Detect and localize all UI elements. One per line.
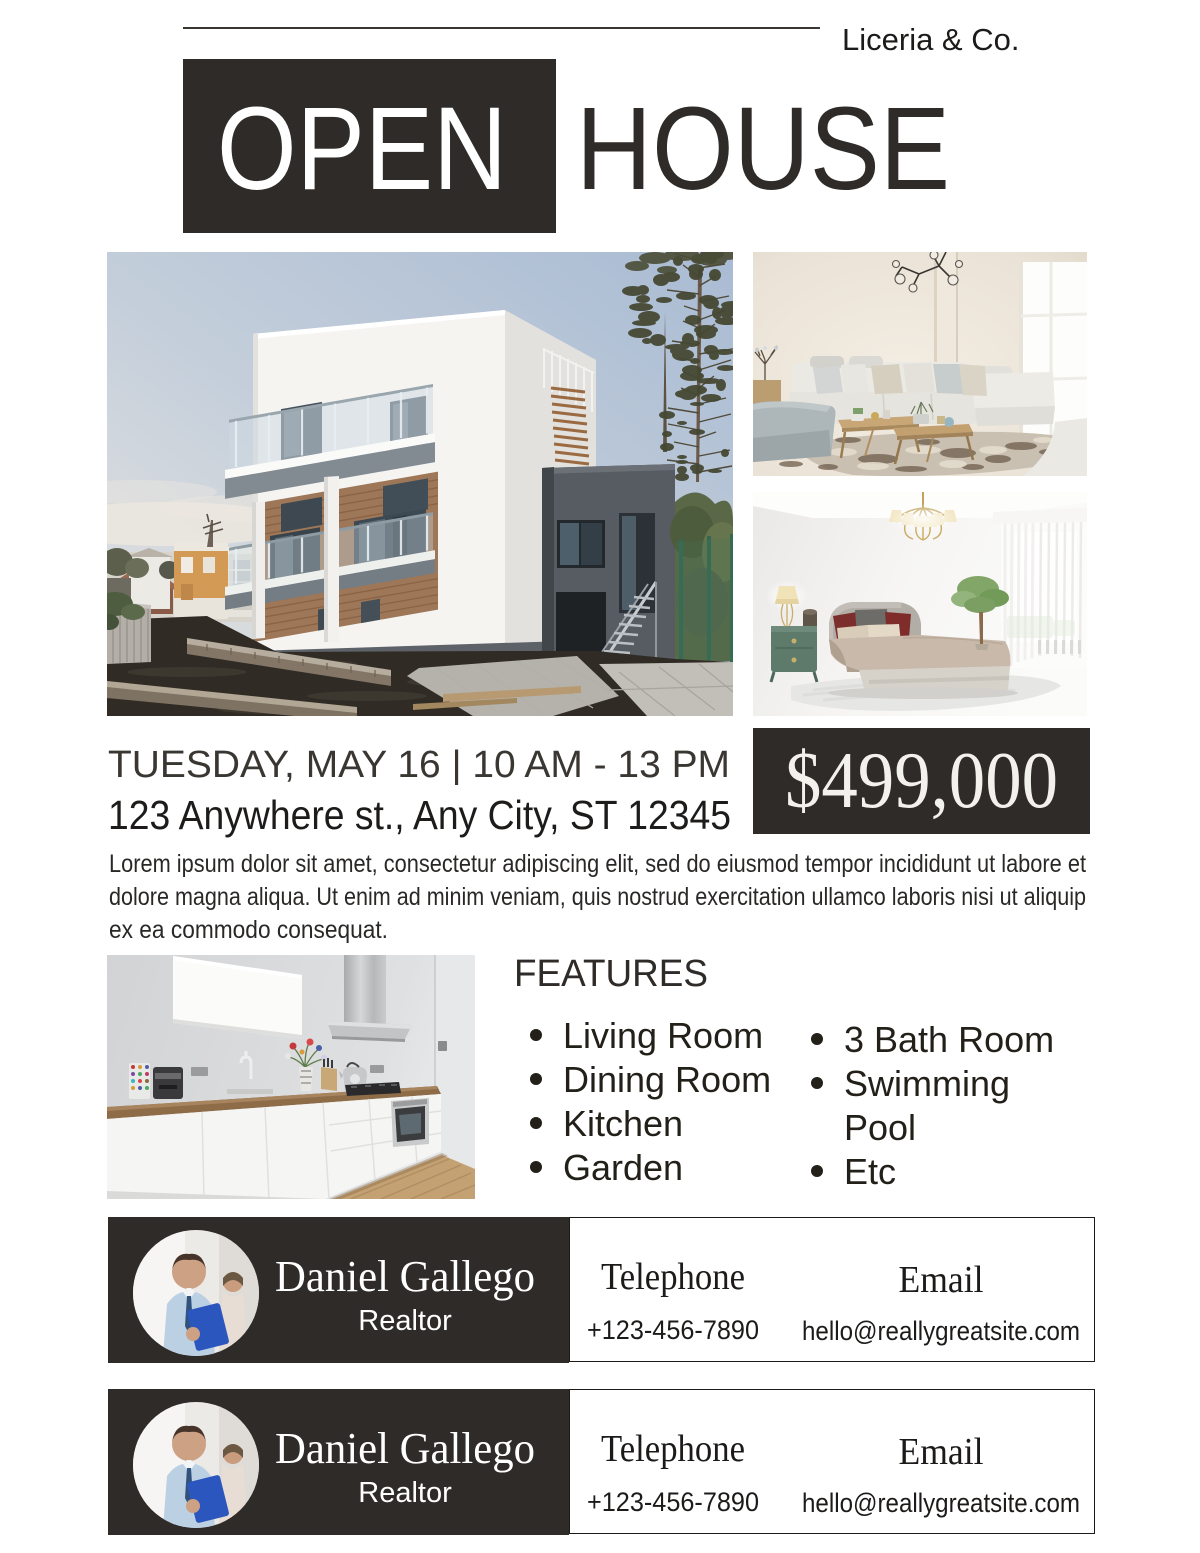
svg-text:Telephone: Telephone: [601, 1256, 745, 1297]
svg-text:hello@reallygreatsite.com: hello@reallygreatsite.com: [802, 1488, 1080, 1518]
svg-text:ex ea commodo consequat.: ex ea commodo consequat.: [109, 916, 388, 944]
svg-text:TUESDAY, MAY 16 | 10 AM - 13 P: TUESDAY, MAY 16 | 10 AM - 13 PM: [108, 744, 730, 786]
svg-text:Telephone: Telephone: [601, 1428, 745, 1469]
svg-text:FEATURES: FEATURES: [514, 953, 708, 995]
svg-text:Email: Email: [899, 1431, 984, 1472]
svg-text:Daniel Gallego: Daniel Gallego: [275, 1252, 535, 1301]
svg-text:123 Anywhere st., Any City, ST: 123 Anywhere st., Any City, ST 12345: [108, 792, 731, 838]
svg-text:+123-456-7890: +123-456-7890: [587, 1315, 759, 1345]
svg-text:Lorem ipsum dolor sit amet, co: Lorem ipsum dolor sit amet, consectetur …: [109, 850, 1086, 878]
svg-text:Daniel Gallego: Daniel Gallego: [275, 1424, 535, 1473]
svg-text:+123-456-7890: +123-456-7890: [587, 1487, 759, 1517]
svg-text:HOUSE: HOUSE: [576, 83, 950, 215]
svg-text:$499,000: $499,000: [785, 735, 1058, 825]
svg-text:Email: Email: [899, 1259, 984, 1300]
svg-text:dolore magna aliqua. Ut enim a: dolore magna aliqua. Ut enim ad minim ve…: [109, 883, 1086, 911]
svg-text:hello@reallygreatsite.com: hello@reallygreatsite.com: [802, 1316, 1080, 1346]
svg-text:OPEN: OPEN: [217, 83, 507, 215]
